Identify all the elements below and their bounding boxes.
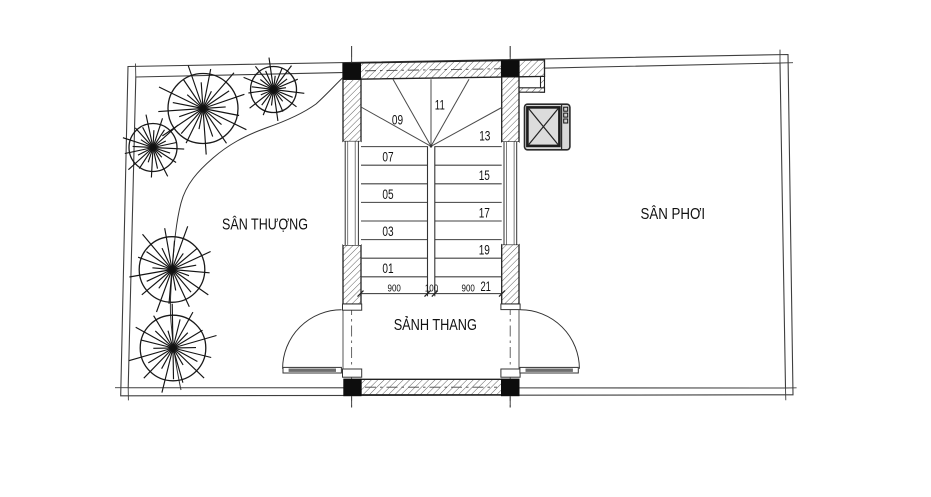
- svg-text:19: 19: [479, 243, 490, 258]
- svg-text:100: 100: [425, 284, 439, 295]
- svg-text:03: 03: [382, 224, 393, 239]
- svg-text:15: 15: [479, 168, 490, 183]
- svg-text:900: 900: [388, 284, 402, 295]
- svg-text:13: 13: [479, 128, 490, 143]
- svg-text:09: 09: [392, 113, 403, 128]
- svg-text:17: 17: [479, 205, 490, 220]
- svg-text:900: 900: [462, 284, 476, 295]
- svg-text:11: 11: [435, 98, 445, 113]
- svg-text:07: 07: [382, 150, 393, 165]
- svg-text:SÂN PHƠI: SÂN PHƠI: [641, 204, 706, 223]
- svg-text:21: 21: [480, 279, 491, 294]
- svg-text:01: 01: [382, 261, 393, 276]
- svg-text:SẢNH THANG: SẢNH THANG: [394, 315, 477, 334]
- svg-text:05: 05: [382, 187, 393, 202]
- svg-text:SÂN THƯỢNG: SÂN THƯỢNG: [222, 216, 308, 233]
